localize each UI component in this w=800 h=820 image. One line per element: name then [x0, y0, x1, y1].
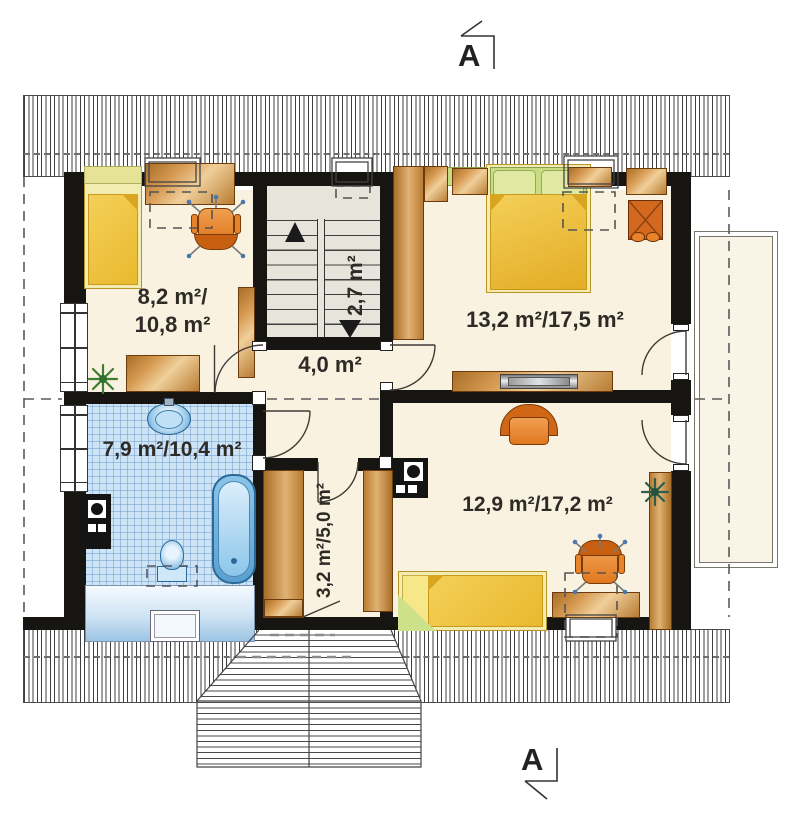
chair-leg-casters — [187, 195, 628, 595]
section-marker-bottom: A — [521, 742, 543, 778]
floor-plan: 8,2 m²/ 10,8 m² 13,2 m²/17,5 m² 7,9 m²/1… — [0, 0, 800, 820]
skylight-projection-dashed — [565, 573, 617, 637]
plant-left-bedroom — [89, 365, 117, 393]
dormer-outline — [197, 630, 421, 767]
door-arc-balcony-lower — [642, 420, 686, 464]
skylight-projection-dashed — [150, 192, 212, 228]
room-label-bedroom-right: 13,2 m²/17,5 m² — [430, 307, 660, 333]
room-label-bedroom-bottom: 12,9 m²/17,2 m² — [445, 493, 630, 517]
skylight-frame-inner — [570, 619, 612, 637]
skylight-frame-inner — [568, 160, 614, 184]
section-diagonal-bottom — [525, 781, 547, 799]
dormer-dashed — [237, 635, 352, 657]
chair-legs — [190, 199, 624, 591]
section-diagonal-top — [461, 21, 482, 36]
room-label-bedroom-left-line2: 10,8 m² — [100, 312, 245, 338]
skylight-projection-dashed — [563, 192, 615, 230]
plan-linework — [0, 0, 800, 820]
skylight-frames — [145, 156, 618, 641]
skylight-projections — [147, 186, 617, 637]
room-label-bedroom-left-line1: 8,2 m²/ — [100, 284, 245, 310]
door-arc-balcony-upper — [642, 331, 686, 375]
door-arc-right-bedroom — [390, 345, 435, 390]
door-arc-bathroom — [263, 411, 310, 458]
toilet-clearance-dashed — [147, 566, 197, 586]
room-label-hall: 4,0 m² — [285, 352, 375, 378]
room-label-wardrobe-room: 3,2 m²/5,0 m² — [314, 466, 336, 614]
roof-projection-dashed — [24, 177, 729, 617]
skylight-frame-inner — [149, 162, 196, 182]
plant-bottom-bedroom — [642, 479, 668, 505]
stair-arrow-up — [285, 222, 305, 242]
skylight-projection-dashed — [336, 186, 370, 198]
skylight-frame — [564, 156, 618, 188]
armchair-x — [629, 201, 662, 239]
room-label-stairs: 2,7 m² — [344, 238, 368, 333]
door-arc-left-bedroom — [215, 345, 263, 393]
section-marker-top: A — [458, 38, 480, 74]
skylight-frame-inner — [336, 162, 368, 182]
room-label-bathroom: 7,9 m²/10,4 m² — [83, 438, 261, 462]
